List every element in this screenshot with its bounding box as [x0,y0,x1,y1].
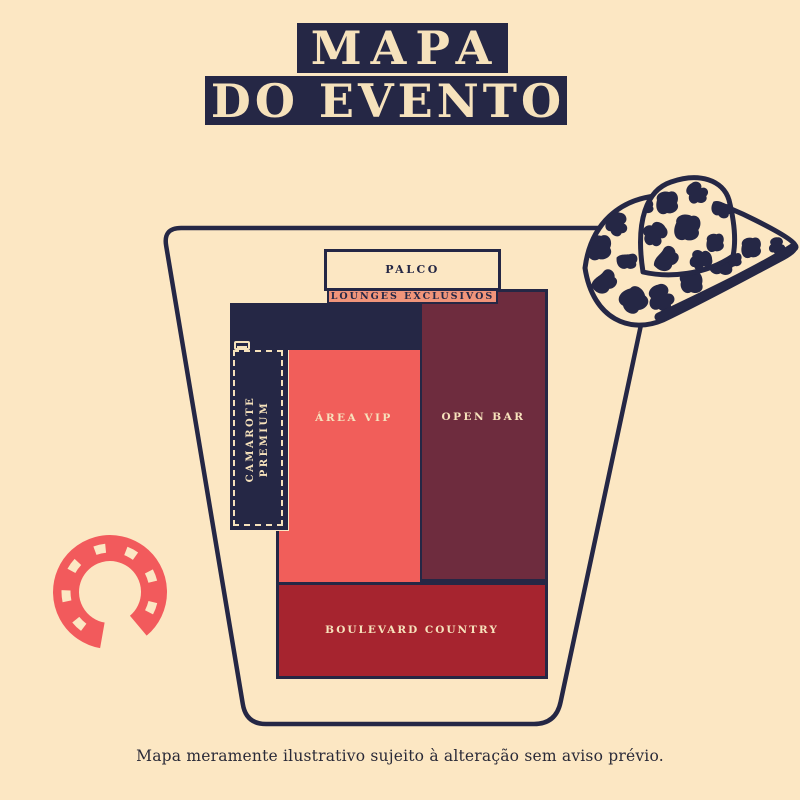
camarote-label-line1: CAMAROTE [245,396,258,483]
event-map-poster: MAPA DO EVENTO PALCO OPEN BAR LOUNGES EX… [0,0,800,800]
area-vip [276,350,420,582]
area-palco: PALCO [324,249,501,291]
area-vip-label: ÁREA VIP [288,412,420,425]
camarote-label-line2: PREMIUM [259,401,272,478]
cow-print-cowboy-hat-icon [555,148,800,363]
camarote-premium-label: CAMAROTE PREMIUM [238,349,278,529]
open-bar-label: OPEN BAR [441,411,525,424]
boulevard-label: BOULEVARD COUNTRY [325,624,499,637]
disclaimer-text: Mapa meramente ilustrativo sujeito à alt… [0,747,800,765]
horseshoe-icon [35,512,185,662]
area-boulevard-country: BOULEVARD COUNTRY [276,582,548,679]
area-open-bar: OPEN BAR [419,289,548,582]
area-lounges-exclusivos: LOUNGES EXCLUSIVOS [327,289,498,304]
palco-label: PALCO [385,263,440,276]
lounges-label: LOUNGES EXCLUSIVOS [331,291,495,302]
